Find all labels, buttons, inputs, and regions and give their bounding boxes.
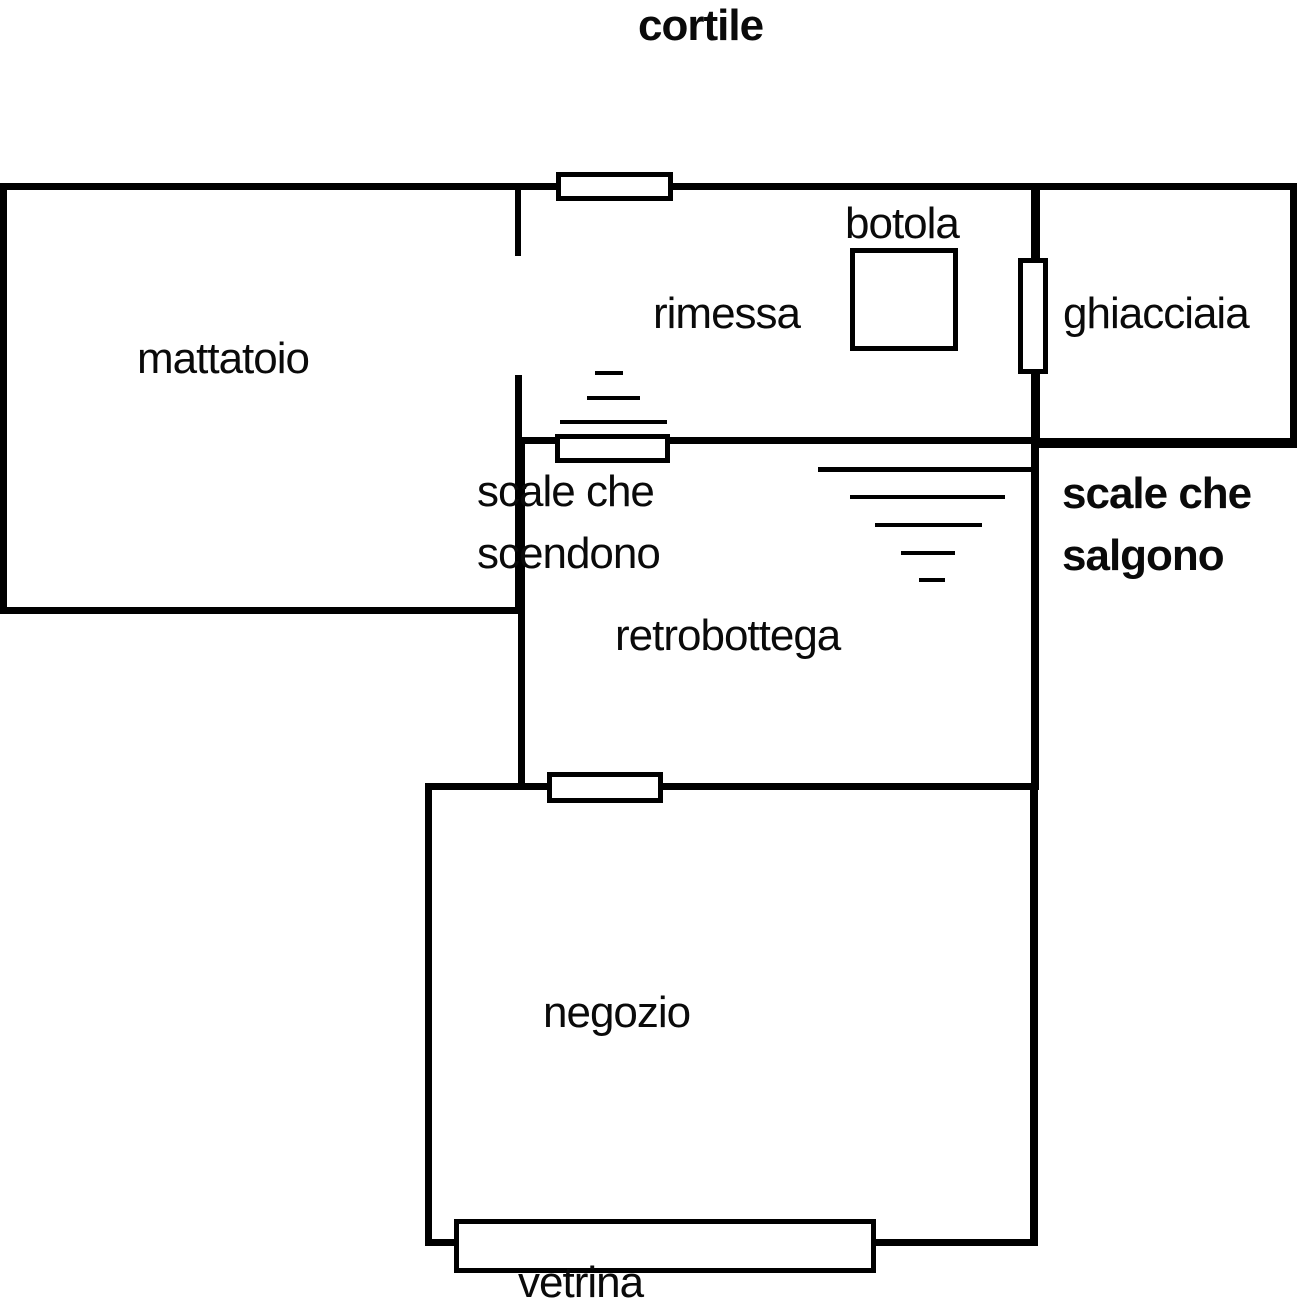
label-rimessa: rimessa <box>653 283 800 345</box>
floor-plan-canvas: cortile mattatoio rimessa botola ghiacci… <box>0 0 1297 1307</box>
label-negozio: negozio <box>543 982 690 1044</box>
stairs-down-step-1 <box>595 371 623 375</box>
door-retrobottega-negozio <box>547 772 663 803</box>
door-rimessa-retrobottega <box>555 434 670 463</box>
label-botola: botola <box>845 193 959 255</box>
stairs-up-step-4 <box>901 551 955 555</box>
label-scale-salgono-line2: salgono <box>1062 531 1224 580</box>
wall-mattatoio-right-upper <box>515 183 521 256</box>
wall-ghiacciaia-right <box>1290 183 1297 448</box>
door-cortile-rimessa <box>556 172 673 201</box>
label-scale-scendono-line2: scendono <box>477 529 660 578</box>
label-mattatoio: mattatoio <box>137 328 309 390</box>
door-rimessa-ghiacciaia <box>1018 258 1048 374</box>
label-retrobottega: retrobottega <box>615 605 840 667</box>
wall-mattatoio-bottom <box>0 607 523 614</box>
wall-negozio-right <box>1030 783 1038 1245</box>
stairs-up-step-2 <box>850 495 1005 499</box>
wall-retrobottega-right <box>1031 443 1039 790</box>
stairs-down-step-3 <box>560 420 667 424</box>
label-scale-che-scendono: scale che scendono <box>477 461 660 585</box>
label-scale-salgono-line1: scale che <box>1062 469 1251 518</box>
label-ghiacciaia: ghiacciaia <box>1063 283 1249 345</box>
wall-mattatoio-left <box>0 183 7 614</box>
stairs-down-step-2 <box>587 396 640 400</box>
stairs-up-step-1 <box>818 467 1035 472</box>
label-scale-scendono-line1: scale che <box>477 467 654 516</box>
wall-retrobottega-negozio <box>425 783 1039 790</box>
label-cortile: cortile <box>638 0 763 57</box>
wall-ghiacciaia-bottom <box>1035 438 1297 448</box>
label-vetrina: vetrina <box>518 1252 643 1307</box>
stairs-up-step-5 <box>919 578 945 582</box>
botola-square <box>850 248 958 351</box>
stairs-up-step-3 <box>875 523 982 527</box>
wall-negozio-left <box>425 783 432 1245</box>
label-scale-che-salgono: scale che salgono <box>1062 463 1251 587</box>
